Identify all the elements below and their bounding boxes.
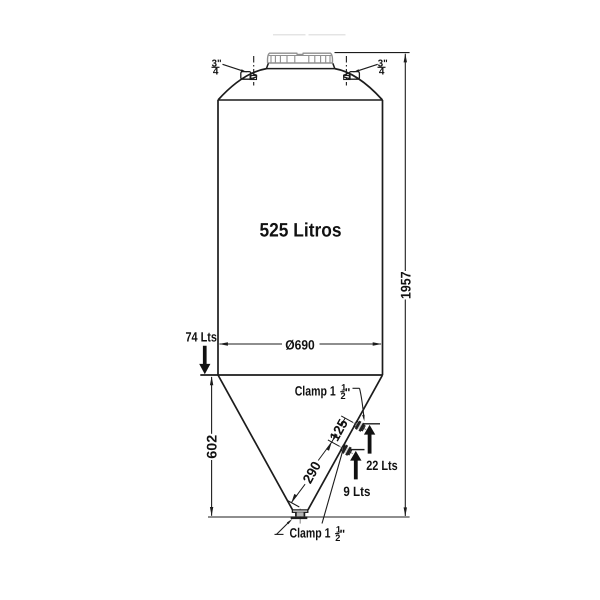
- svg-text:Clamp 1: Clamp 1: [295, 384, 336, 399]
- svg-text:Ø690: Ø690: [285, 337, 315, 352]
- svg-text:Clamp 1: Clamp 1: [290, 526, 331, 541]
- svg-text:4: 4: [379, 66, 385, 77]
- svg-text:525 Litros: 525 Litros: [260, 219, 342, 241]
- svg-text:602: 602: [204, 435, 220, 459]
- svg-text:4: 4: [213, 66, 219, 77]
- svg-text:9 Lts: 9 Lts: [343, 484, 370, 499]
- svg-text:22 Lts: 22 Lts: [366, 458, 398, 473]
- svg-text:2: 2: [341, 391, 346, 401]
- svg-text:2: 2: [335, 533, 340, 543]
- svg-text:1957: 1957: [397, 271, 413, 299]
- svg-text:74 Lts: 74 Lts: [186, 330, 218, 345]
